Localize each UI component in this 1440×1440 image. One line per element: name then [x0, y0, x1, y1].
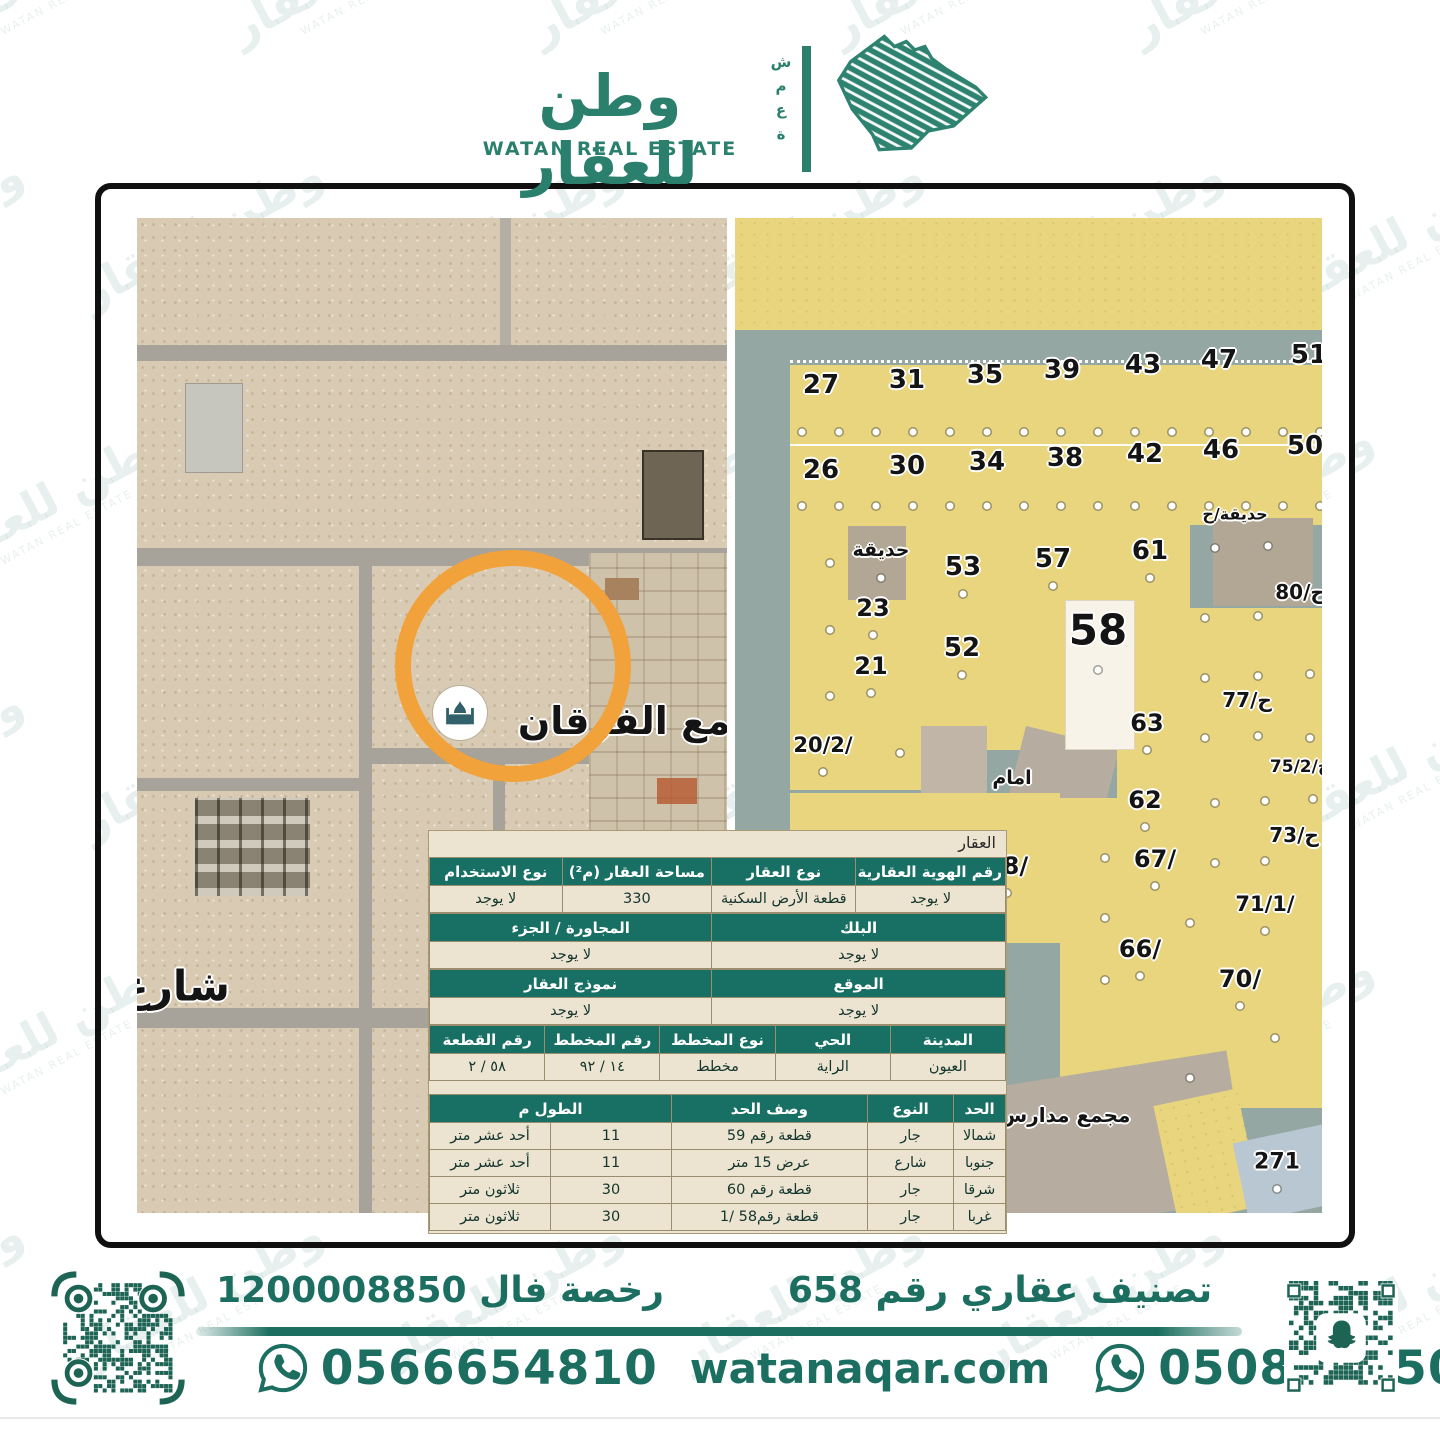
plot-label: 31: [889, 365, 925, 395]
table-cell: البلك: [712, 914, 1006, 942]
sat-road-vertical-main: [359, 554, 372, 1213]
table-cell: المدينة: [890, 1026, 1005, 1054]
plot-dot: [1307, 671, 1314, 678]
plot-dot: [799, 503, 806, 510]
watermark: وطن للعقارWATAN REAL ESTATE: [0, 0, 188, 66]
plot-dot: [836, 429, 843, 436]
plot-dot: [827, 693, 834, 700]
property-details-panel: العقار رقم الهوية العقاريةنوع العقارمساح…: [428, 830, 1007, 1234]
plot-label: 66/: [1119, 935, 1161, 963]
plot-dot: [1202, 675, 1209, 682]
watermark: وطن للعقارWATAN REAL ESTATE: [1420, 941, 1440, 1126]
plot-label: ح/77: [1222, 688, 1272, 712]
table-cell: عرض 15 متر: [671, 1150, 867, 1177]
plot-label: امام: [992, 767, 1031, 789]
plot-dot: [1132, 503, 1139, 510]
table-cell: لا يوجد: [712, 998, 1006, 1025]
watermark: وطن للعقارWATAN REAL ESTATE: [0, 1206, 38, 1391]
sat-road-horizontal-left: [137, 778, 359, 791]
plot-dot: [1144, 747, 1151, 754]
sat-building-dark: [642, 450, 704, 540]
plot-dot: [1274, 1186, 1281, 1193]
plot-label: 52: [944, 633, 980, 663]
plot-label: 35: [967, 360, 1003, 390]
plot-label: 70/: [1219, 965, 1261, 993]
watermark: وطن للعقارWATAN REAL ESTATE: [1420, 0, 1440, 66]
plot-dot: [1310, 796, 1317, 803]
table-cell: 30: [550, 1177, 671, 1204]
plot-label: حديقة: [853, 539, 910, 561]
highlight-circle: [395, 550, 631, 782]
table-cell: الموقع: [712, 970, 1006, 998]
table-cell: الطول م: [430, 1095, 672, 1123]
plot-label: 67/: [1134, 845, 1176, 873]
table-cell: العيون: [890, 1054, 1005, 1081]
table-cell: نوع المخطط: [660, 1026, 775, 1054]
plot-dot: [1147, 575, 1154, 582]
table-cell: رقم المخطط: [545, 1026, 660, 1054]
table-cell: ثلاثون متر: [430, 1177, 551, 1204]
table-cell: شمالا: [954, 1123, 1006, 1150]
table-cell: جار: [867, 1177, 953, 1204]
table-cell: جنوبا: [954, 1150, 1006, 1177]
plot-dot: [1142, 824, 1149, 831]
plot-dot: [873, 503, 880, 510]
plot-dot: [1132, 429, 1139, 436]
plot-dot: [1280, 503, 1287, 510]
plot-dot: [820, 769, 827, 776]
plot-dot: [1187, 1075, 1194, 1082]
table-cell: أحد عشر متر: [430, 1150, 551, 1177]
plot-dot: [1237, 1003, 1244, 1010]
table-cell: النوع: [867, 1095, 953, 1123]
plot-label: ح/80: [1275, 580, 1322, 604]
plot-label: 23: [856, 594, 889, 622]
saudi-map-logo-icon: [820, 28, 996, 180]
website-link[interactable]: watanaqar.com: [690, 1344, 1050, 1393]
plot-label: 53: [945, 552, 981, 582]
watermark: وطن للعقارWATAN REAL ESTATE: [220, 0, 488, 66]
boundaries-table: الحدالنوعوصف الحدالطول مشمالاجارقطعة رقم…: [429, 1094, 1006, 1231]
table-cell: رقم الهوية العقارية: [856, 858, 1006, 886]
table-cell: لا يوجد: [430, 998, 712, 1025]
watermark: وطن للعقارWATAN REAL ESTATE: [0, 146, 38, 331]
plot-label: 50: [1287, 431, 1322, 461]
sat-road-horizontal-top: [137, 345, 727, 361]
plot-label: مجمع مدارس: [1000, 1103, 1131, 1127]
plot-dot: [1272, 1035, 1279, 1042]
plot-label: 58: [1069, 606, 1127, 655]
plot-dot: [897, 750, 904, 757]
plot-label: 27: [803, 370, 839, 400]
plot-label: 47: [1201, 345, 1237, 375]
plot-dot: [1152, 883, 1159, 890]
table-cell: غربا: [954, 1204, 1006, 1231]
plot-dot: [947, 429, 954, 436]
plot-label: 57: [1035, 544, 1071, 574]
plot-dot: [1058, 503, 1065, 510]
plot-dot: [1212, 860, 1219, 867]
table-cell: شرقا: [954, 1177, 1006, 1204]
watermark: وطن للعقارWATAN REAL ESTATE: [1120, 0, 1388, 66]
table-cell: ١٤ / ٩٢: [545, 1054, 660, 1081]
property-table-city: المدينةالحينوع المخططرقم المخططرقم القطع…: [429, 1025, 1006, 1081]
plot-dot: [1169, 503, 1176, 510]
plot-label: 51: [1291, 340, 1322, 370]
plot-dot: [984, 503, 991, 510]
table-cell: قطعة رقم58 /1: [671, 1204, 867, 1231]
plot-label: 26: [803, 455, 839, 485]
plot-dot: [1095, 503, 1102, 510]
property-table-main: رقم الهوية العقاريةنوع العقارمساحة العقا…: [429, 857, 1006, 913]
plot-label: 61: [1132, 536, 1168, 566]
plot-dot: [1169, 429, 1176, 436]
plot-dot: [868, 690, 875, 697]
table-cell: أحد عشر متر: [430, 1123, 551, 1150]
table-cell: لا يوجد: [430, 886, 563, 913]
plot-label: حديقة/ح: [1202, 505, 1267, 524]
plot-dot: [1317, 503, 1323, 510]
plot-dot: [1262, 798, 1269, 805]
plot-dot: [910, 429, 917, 436]
table-cell: نموذج العقار: [430, 970, 712, 998]
property-table-location: الموقعنموذج العقارلا يوجدلا يوجد: [429, 969, 1006, 1025]
table-cell: جار: [867, 1204, 953, 1231]
table-cell: نوع الاستخدام: [430, 858, 563, 886]
plot-dot: [960, 591, 967, 598]
plot-dot: [1202, 615, 1209, 622]
flyer-canvas: وطن للعقارWATAN REAL ESTATEوطن للعقارWAT…: [0, 0, 1440, 1440]
sat-building-cluster: [195, 798, 310, 896]
brand-side-word: ش م ع ة: [768, 50, 794, 146]
sat-roof-red: [657, 778, 697, 804]
qr-code-left[interactable]: [50, 1270, 186, 1406]
plot-dot: [799, 429, 806, 436]
plot-label: 271: [1254, 1150, 1300, 1175]
table-cell: رقم القطعة: [430, 1026, 545, 1054]
brand-divider-bar: [802, 46, 811, 172]
plot-label: 34: [969, 447, 1005, 477]
table-cell: 11: [550, 1123, 671, 1150]
table-cell: وصف الحد: [671, 1095, 867, 1123]
plot-dot: [1202, 735, 1209, 742]
sat-building-light: [185, 383, 243, 473]
plot-dot: [1050, 583, 1057, 590]
snapcode-qr[interactable]: [1284, 1276, 1398, 1400]
table-cell: مخطط: [660, 1054, 775, 1081]
plot-label: 46: [1203, 435, 1239, 465]
plot-dot: [870, 632, 877, 639]
plot-label: 20/2/: [793, 733, 852, 757]
plot-dot: [878, 575, 885, 582]
plot-label: ح/73: [1269, 823, 1319, 847]
table-cell: ثلاثون متر: [430, 1204, 551, 1231]
fal-license-text: رخصة فال 1200008850: [205, 1270, 675, 1311]
plot-label: 43: [1125, 350, 1161, 380]
plot-dot: [1102, 915, 1109, 922]
watermark: وطن للعقارWATAN REAL ESTATE: [520, 0, 788, 66]
plot-label: 38: [1047, 443, 1083, 473]
table-cell: شارع: [867, 1150, 953, 1177]
plot-dot: [1212, 545, 1219, 552]
table-cell: المجاورة / الجزء: [430, 914, 712, 942]
plot-dot: [1307, 735, 1314, 742]
table-cell: 30: [550, 1204, 671, 1231]
sat-roof-brown: [605, 578, 639, 600]
plot-label: 21: [854, 652, 887, 680]
plot-dot: [1102, 855, 1109, 862]
table-cell: الراية: [775, 1054, 890, 1081]
table-cell: نوع العقار: [712, 858, 856, 886]
brand-name-arabic: وطن للعقار: [468, 62, 752, 198]
plot-label: ح/75/2: [1270, 757, 1322, 777]
plot-dot: [1255, 613, 1262, 620]
parcel-block-top: [735, 218, 1322, 330]
table-cell: قطعة الأرض السكنية: [712, 886, 856, 913]
brand-name-english: WATAN REAL ESTATE: [468, 138, 752, 160]
parcel-garden-plot: [848, 526, 906, 600]
table-gap: [429, 1081, 1006, 1094]
plot-dot: [1102, 977, 1109, 984]
classification-text: تصنيف عقاري رقم 658: [780, 1270, 1220, 1311]
table-cell: 330: [562, 886, 712, 913]
whatsapp-icon: [255, 1340, 311, 1396]
table-cell: قطعة رقم 60: [671, 1177, 867, 1204]
plot-dot: [1243, 429, 1250, 436]
plot-dot: [1058, 429, 1065, 436]
plot-dot: [1021, 503, 1028, 510]
bottom-hairline: [0, 1417, 1440, 1419]
plot-label: 30: [889, 451, 925, 481]
plot-dot: [873, 429, 880, 436]
footer-divider-line: [196, 1327, 1242, 1336]
table-cell: ٥٨ / ٢: [430, 1054, 545, 1081]
plot-label: شارع: [137, 962, 230, 1011]
plot-dot: [984, 429, 991, 436]
plot-dot: [1095, 667, 1102, 674]
plot-dot: [947, 503, 954, 510]
plot-dot: [1095, 429, 1102, 436]
plot-label: 62: [1128, 786, 1161, 814]
watermark: وطن للعقارWATAN REAL ESTATE: [1420, 411, 1440, 596]
plot-dot: [836, 503, 843, 510]
plot-dot: [1262, 928, 1269, 935]
phone-number-left[interactable]: 0566654810: [321, 1341, 658, 1396]
table-cell: 11: [550, 1150, 671, 1177]
table-cell: قطعة رقم 59: [671, 1123, 867, 1150]
table-cell: الحي: [775, 1026, 890, 1054]
plot-dot: [1262, 858, 1269, 865]
property-table-block: البلكالمجاورة / الجزءلا يوجدلا يوجد: [429, 913, 1006, 969]
plot-label: 63: [1130, 709, 1163, 737]
plot-label: 42: [1127, 439, 1163, 469]
contact-row: 0566654810 watanaqar.com 0508505505: [380, 1340, 1360, 1396]
plot-dot: [1137, 973, 1144, 980]
plot-dot: [1255, 733, 1262, 740]
plot-dot: [1187, 920, 1194, 927]
plot-label: 39: [1044, 355, 1080, 385]
table-cell: لا يوجد: [856, 886, 1006, 913]
plot-dot: [959, 672, 966, 679]
table-title: العقار: [429, 831, 1006, 857]
plot-dot: [1280, 429, 1287, 436]
watermark: وطن للعقارWATAN REAL ESTATE: [0, 676, 38, 861]
plot-dot: [827, 560, 834, 567]
plot-dot: [1265, 543, 1272, 550]
plot-label: 71/1/: [1235, 892, 1294, 916]
plot-dot: [827, 627, 834, 634]
table-cell: لا يوجد: [712, 942, 1006, 969]
whatsapp-icon: [1092, 1340, 1148, 1396]
table-cell: مساحة العقار (م²): [562, 858, 712, 886]
table-cell: الحد: [954, 1095, 1006, 1123]
sat-road-vertical-stub: [500, 218, 511, 345]
table-cell: جار: [867, 1123, 953, 1150]
plot-dot: [1212, 800, 1219, 807]
plot-dot: [1255, 673, 1262, 680]
plot-dot: [910, 503, 917, 510]
plot-dot: [1021, 429, 1028, 436]
table-cell: لا يوجد: [430, 942, 712, 969]
